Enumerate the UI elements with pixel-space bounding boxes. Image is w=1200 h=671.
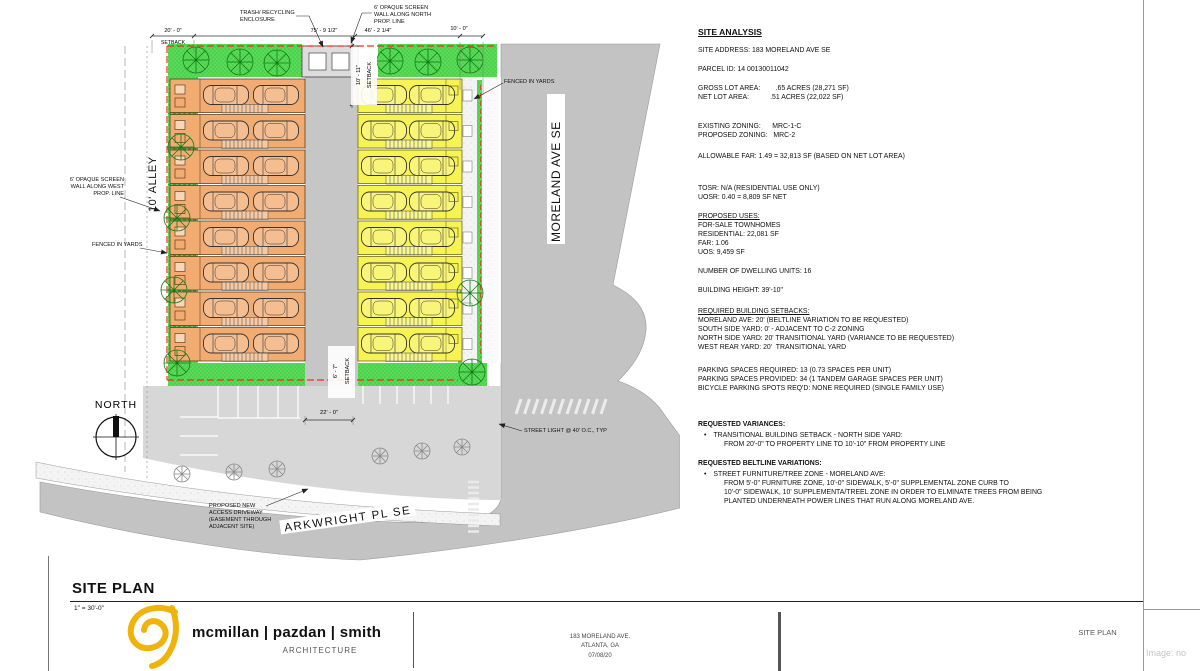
firm-logo-icon xyxy=(120,602,192,670)
trash-enclosure xyxy=(302,46,358,77)
sheet-title: SITE PLAN xyxy=(72,580,155,597)
analysis-line: FOR-SALE TOWNHOMES xyxy=(698,222,780,229)
analysis-line: PARKING SPACES REQUIRED: 13 (0.73 SPACES… xyxy=(698,367,891,374)
project-address: 183 MORELAND AVE. ATLANTA, GA 07/08/20 xyxy=(545,633,655,661)
analysis-line: NUMBER OF DWELLING UNITS: 16 xyxy=(698,268,811,275)
access-driveway-label: PROPOSED NEW ACCESS DRIVEWAY (EASEMENT T… xyxy=(209,503,273,531)
site-analysis-panel: SITE ANALYSIS SITE ADDRESS: 183 MORELAND… xyxy=(698,0,1168,560)
beltline-item: STREET FURNITURE/TREE ZONE - MORELAND AV… xyxy=(704,471,885,478)
trash-enclosure-label: TRASH/ RECYCLING ENCLOSURE xyxy=(240,10,302,24)
dim-46: 46' - 2 1/4" xyxy=(365,28,392,34)
analysis-line: BICYCLE PARKING SPOTS REQ'D: NONE REQUIR… xyxy=(698,385,944,392)
dimension-south-setback: 6' - 7" SETBACK xyxy=(328,346,355,398)
variance-item-cont: FROM 20'-0" TO PROPERTY LINE TO 10'-10" … xyxy=(724,441,945,448)
watermark-text: Image: no xyxy=(1146,648,1186,658)
dim-6-7-setback: SETBACK xyxy=(345,358,351,384)
analysis-line: PARKING SPACES PROVIDED: 34 (1 TANDEM GA… xyxy=(698,376,943,383)
dim-10-11: 10' - 11" xyxy=(356,65,362,85)
sheet-border-right xyxy=(1143,0,1144,671)
fenced-yards-right-label: FENCED IN YARDS xyxy=(504,79,554,86)
beltline-item-cont: PLANTED UNDERNEATH POWER LINES THAT RUN … xyxy=(724,498,974,505)
analysis-line: NET LOT AREA: .51 ACRES (22,022 SF) xyxy=(698,94,843,101)
analysis-line: FAR: 1.06 xyxy=(698,240,729,247)
beltline-item-cont: FROM 5'-0" FURNITURE ZONE, 10'-0" SIDEWA… xyxy=(724,480,1009,487)
analysis-line: WEST REAR YARD: 20' TRANSITIONAL YARD xyxy=(698,344,846,351)
dim-10: 10' - 0" xyxy=(450,26,467,32)
analysis-line: UOSR: 0.40 = 8,809 SF NET xyxy=(698,194,787,201)
beltline-variations-heading: REQUESTED BELTLINE VARIATIONS: xyxy=(698,460,822,467)
parking-lot xyxy=(143,386,501,500)
dimension-north-setback: 10' - 11" SETBACK xyxy=(350,42,377,108)
proposed-uses-heading: PROPOSED USES: xyxy=(698,213,760,220)
moreland-sidewalk xyxy=(482,77,501,363)
sheet-date: 07/08/20 xyxy=(545,652,655,661)
dim-20-setback: SETBACK xyxy=(161,40,186,46)
corner-line xyxy=(1143,609,1200,610)
titleblock-divider-thick xyxy=(778,612,781,671)
analysis-line: PARCEL ID: 14 00130011042 xyxy=(698,66,789,73)
analysis-line: TOSR: N/A (RESIDENTIAL USE ONLY) xyxy=(698,185,820,192)
sheet-border-left xyxy=(48,556,49,671)
alley-street-label: 10' ALLEY xyxy=(147,156,159,212)
east-walkway xyxy=(462,77,477,363)
site-plan-svg: 20' - 0" SETBACK 75' - 9 1/2" 46' - 2 1/… xyxy=(0,0,680,580)
dim-22: 22' - 0" xyxy=(320,410,338,416)
analysis-line: EXISTING ZONING: MRC-1-C xyxy=(698,123,801,130)
beltline-item-cont: 10'-0" SIDEWALK, 10' SUPPLEMENTA/TREEL Z… xyxy=(724,489,1042,496)
site-plan-drawing: 20' - 0" SETBACK 75' - 9 1/2" 46' - 2 1/… xyxy=(0,0,680,580)
townhomes-east-building xyxy=(358,79,472,362)
street-light-label: STREET LIGHT @ 40' O.C., TYP xyxy=(524,428,607,435)
variance-item: TRANSITIONAL BUILDING SETBACK - NORTH SI… xyxy=(704,432,903,439)
analysis-line: BUILDING HEIGHT: 39'-10" xyxy=(698,287,783,294)
screen-wall-north-label: 6' OPAQUE SCREEN WALL ALONG NORTH PROP. … xyxy=(374,5,436,26)
sheet-scale: 1" = 30'-0" xyxy=(74,605,104,612)
site-analysis-title: SITE ANALYSIS xyxy=(698,27,762,37)
north-arrow: NORTH xyxy=(93,399,139,460)
analysis-line: MORELAND AVE: 20' (BELTLINE VARIATION TO… xyxy=(698,317,908,324)
analysis-line: GROSS LOT AREA: .65 ACRES (28,271 SF) xyxy=(698,85,849,92)
sheet-name: SITE PLAN xyxy=(1055,628,1140,637)
analysis-line: PROPOSED ZONING: MRC-2 xyxy=(698,132,795,139)
firm-name: mcmillan | pazdan | smith xyxy=(192,624,381,641)
analysis-line: SITE ADDRESS: 183 MORELAND AVE SE xyxy=(698,47,830,54)
address-line1: 183 MORELAND AVE. xyxy=(545,633,655,642)
sheet: 20' - 0" SETBACK 75' - 9 1/2" 46' - 2 1/… xyxy=(0,0,1200,671)
north-label: NORTH xyxy=(95,399,137,411)
setbacks-heading: REQUIRED BUILDING SETBACKS: xyxy=(698,308,809,315)
analysis-line: UOS: 9,459 SF xyxy=(698,249,745,256)
analysis-line: RESIDENTIAL: 22,081 SF xyxy=(698,231,779,238)
analysis-line: SOUTH SIDE YARD: 0' - ADJACENT TO C-2 ZO… xyxy=(698,326,864,333)
requested-variances-heading: REQUESTED VARIANCES: xyxy=(698,421,785,428)
address-line2: ATLANTA, GA xyxy=(545,642,655,651)
analysis-line: NORTH SIDE YARD: 20' TRANSITIONAL YARD (… xyxy=(698,335,954,342)
screen-wall-west-label: 6' OPAQUE SCREEN WALL ALONG WEST PROP. L… xyxy=(58,177,124,198)
fenced-yards-left-label: FENCED IN YARDS xyxy=(92,242,142,249)
titleblock-divider xyxy=(413,612,414,668)
drive-aisle xyxy=(305,77,358,386)
dim-6-7: 6' - 7" xyxy=(333,364,339,378)
title-rule xyxy=(70,601,1143,602)
dim-20: 20' - 0" xyxy=(164,28,181,34)
dim-10-11-setback: SETBACK xyxy=(367,62,373,88)
moreland-street-label: MORELAND AVE SE xyxy=(549,121,563,242)
firm-subtitle: ARCHITECTURE xyxy=(240,646,400,655)
analysis-line: ALLOWABLE FAR: 1.49 = 32,813 SF (BASED O… xyxy=(698,153,905,160)
